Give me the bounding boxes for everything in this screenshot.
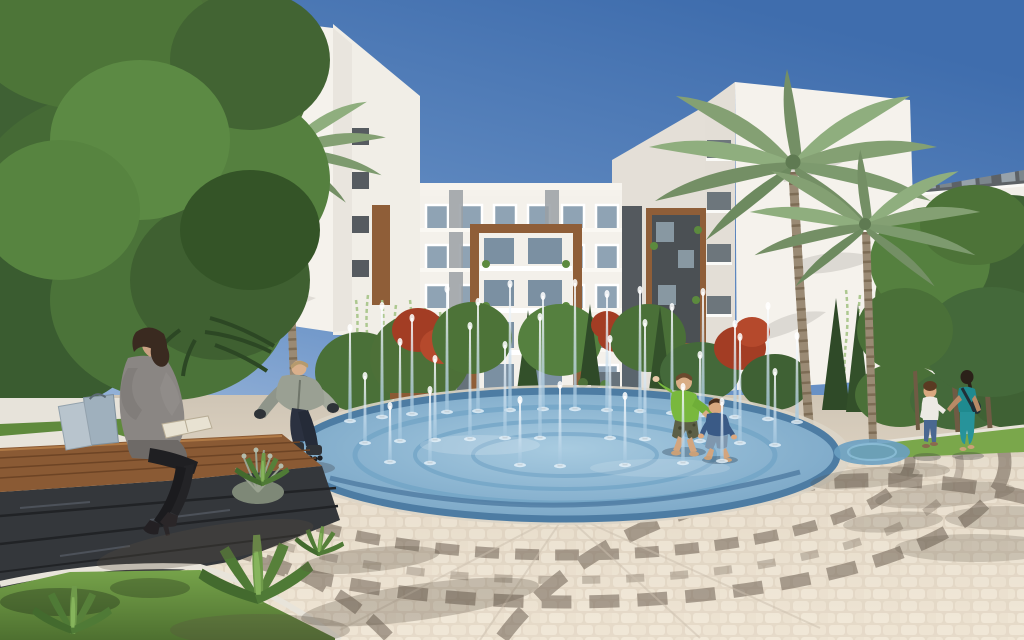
- architectural-render: [0, 0, 1024, 640]
- blue-paving-circle: [834, 439, 910, 465]
